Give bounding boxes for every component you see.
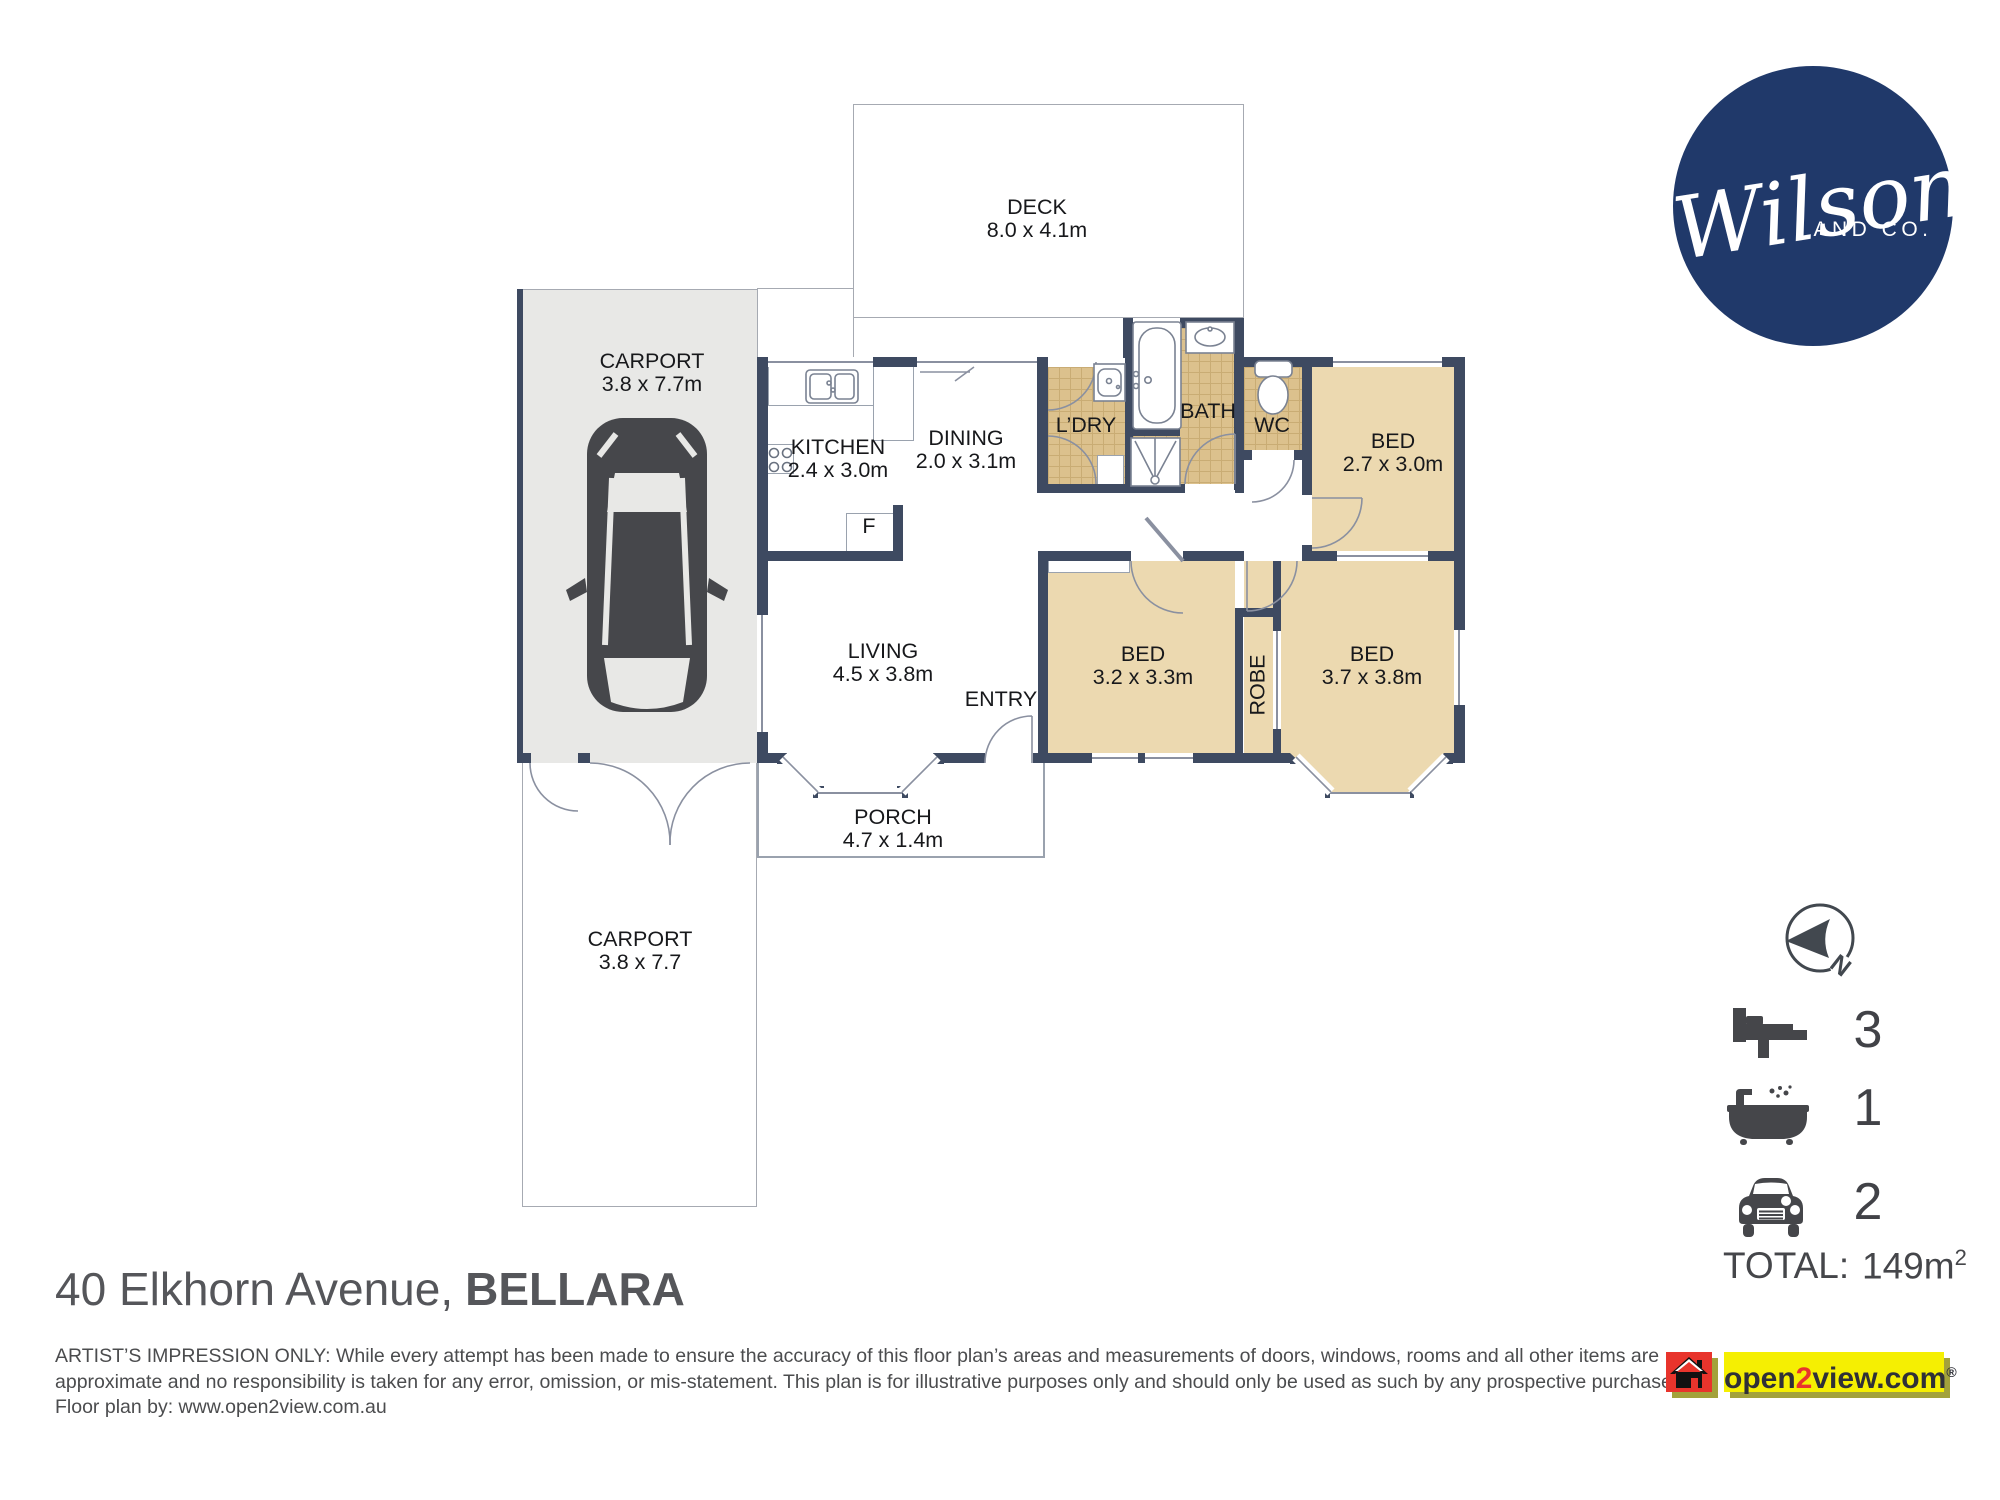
room-label-bed1: BED2.7 x 3.0m bbox=[1343, 430, 1443, 476]
bed2-door-leaf bbox=[1146, 518, 1183, 561]
laundry-door-lower bbox=[1048, 436, 1096, 484]
o2v-two: 2 bbox=[1796, 1362, 1813, 1395]
room-label-porch: PORCH4.7 x 1.4m bbox=[843, 806, 943, 852]
wilson-logo-subtext: AND CO. bbox=[1813, 218, 1933, 242]
bathtub-icon bbox=[1133, 322, 1181, 429]
carport-door-right bbox=[670, 763, 750, 845]
room-label-bath: BATH bbox=[1180, 400, 1236, 423]
total-label: TOTAL: bbox=[1723, 1245, 1849, 1287]
bath-door bbox=[1185, 434, 1235, 484]
room-label-bed3: BED3.7 x 3.8m bbox=[1322, 643, 1422, 689]
disclaimer-text: ARTIST’S IMPRESSION ONLY: While every at… bbox=[55, 1344, 1683, 1421]
compass-icon: N bbox=[1786, 905, 1856, 982]
entry-door bbox=[985, 716, 1032, 763]
bedroom-count: 3 bbox=[1854, 1000, 1883, 1060]
bed3-door bbox=[1247, 561, 1297, 611]
laundry-tub-icon bbox=[1094, 364, 1125, 401]
room-label-deck: DECK8.0 x 4.1m bbox=[987, 196, 1087, 242]
address-street: 40 Elkhorn Avenue, bbox=[55, 1263, 453, 1315]
disclaimer-line-3: Floor plan by: www.open2view.com.au bbox=[55, 1395, 1683, 1421]
bed1-door bbox=[1312, 498, 1362, 548]
bed-icon bbox=[1731, 1004, 1809, 1062]
bathtub-count-icon bbox=[1726, 1083, 1810, 1145]
carport-door-left bbox=[590, 763, 670, 845]
o2v-open: open bbox=[1724, 1362, 1796, 1395]
property-address: 40 Elkhorn Avenue,BELLARA bbox=[55, 1262, 685, 1316]
room-label-wc: WC bbox=[1254, 414, 1290, 437]
room-label-carport-bottom: CARPORT3.8 x 7.7 bbox=[588, 928, 693, 974]
vanity-icon bbox=[1186, 322, 1234, 353]
carport-side-door bbox=[530, 763, 578, 811]
car-space-count: 2 bbox=[1854, 1172, 1883, 1232]
laundry-door-upper bbox=[1048, 362, 1096, 410]
disclaimer-line-1: ARTIST’S IMPRESSION ONLY: While every at… bbox=[55, 1344, 1683, 1370]
room-label-carport-top: CARPORT3.8 x 7.7m bbox=[600, 350, 705, 396]
total-value: 149m2 bbox=[1862, 1245, 1967, 1287]
open2view-house-icon bbox=[1666, 1352, 1712, 1392]
open2view-wordmark: open2view.com® bbox=[1724, 1352, 1944, 1392]
o2v-registered: ® bbox=[1946, 1364, 1956, 1380]
room-label-kitchen: KITCHEN2.4 x 3.0m bbox=[788, 436, 888, 482]
car-count-icon bbox=[1731, 1174, 1811, 1238]
address-suburb: BELLARA bbox=[465, 1263, 685, 1315]
room-label-laundry: L’DRY bbox=[1056, 414, 1117, 437]
toilet-icon bbox=[1255, 361, 1292, 414]
car-top-icon bbox=[566, 418, 728, 712]
dining-slider-leaf bbox=[920, 367, 974, 381]
room-label-living: LIVING4.5 x 3.8m bbox=[833, 640, 933, 686]
room-label-robe: ROBE bbox=[1247, 655, 1270, 716]
room-label-fridge: F bbox=[862, 515, 875, 538]
shower-icon bbox=[1131, 438, 1180, 486]
wilson-and-co-logo: Wilson AND CO. bbox=[1673, 66, 1953, 346]
wilson-logo-script: Wilson bbox=[1666, 133, 1960, 285]
room-label-entry: ENTRY bbox=[965, 688, 1037, 711]
room-label-bed2: BED3.2 x 3.3m bbox=[1093, 643, 1193, 689]
o2v-view: view.com bbox=[1812, 1362, 1946, 1395]
kitchen-sink-icon bbox=[806, 370, 858, 403]
wc-door bbox=[1252, 460, 1294, 502]
open2view-house-badge bbox=[1666, 1352, 1712, 1392]
bathroom-count: 1 bbox=[1854, 1078, 1883, 1138]
bed2-door-swing bbox=[1131, 561, 1183, 613]
room-label-dining: DINING2.0 x 3.1m bbox=[916, 427, 1016, 473]
floor-plan-page: N DECK8.0 x 4.1m CARPORT3.8 x 7.7m KITCH… bbox=[0, 0, 2000, 1500]
disclaimer-line-2: approximate and no responsibility is tak… bbox=[55, 1370, 1683, 1396]
